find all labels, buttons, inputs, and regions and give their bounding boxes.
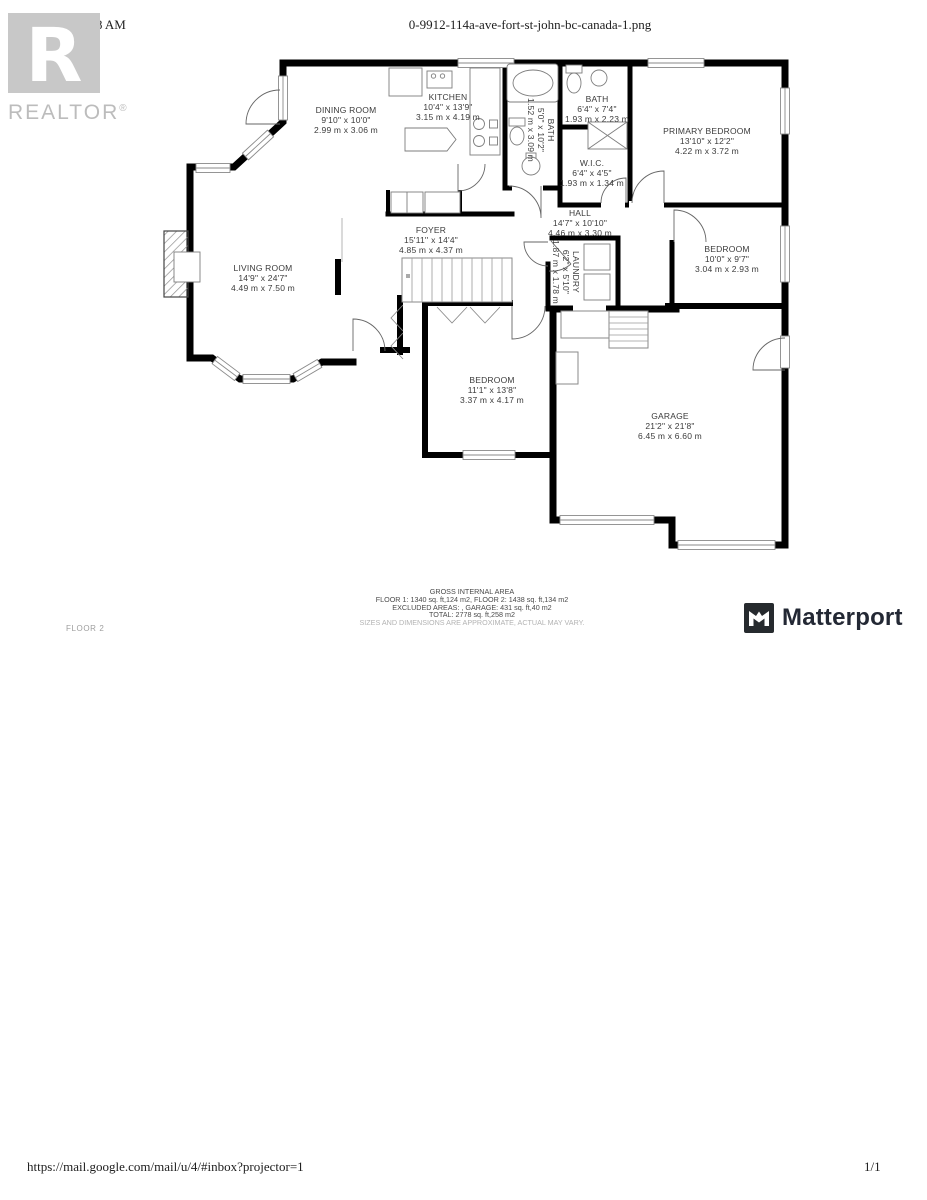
- room-label-wic: W.I.C.6'4" x 4'5"1.93 m x 1.34 m: [560, 158, 624, 188]
- washer: [584, 244, 610, 270]
- room-label-primary-bedroom: PRIMARY BEDROOM13'10" x 12'2"4.22 m x 3.…: [663, 126, 751, 156]
- matterport-logo: Matterport: [744, 603, 903, 633]
- area-summary-disclaimer: SIZES AND DIMENSIONS ARE APPROXIMATE, AC…: [360, 619, 585, 627]
- area-summary: GROSS INTERNAL AREA FLOOR 1: 1340 sq. ft…: [360, 588, 585, 627]
- matterport-wordmark: Matterport: [782, 604, 903, 632]
- bathroom-sink: [591, 70, 607, 86]
- realtor-r-icon: R: [8, 13, 100, 93]
- kitchen-island: [405, 128, 456, 151]
- floorplan-drawing: [150, 45, 800, 570]
- room-label-foyer: FOYER15'11'' x 14'4"4.85 m x 4.37 m: [399, 225, 463, 255]
- realtor-logo: R REALTOR®: [8, 13, 138, 125]
- toilet-tank: [566, 65, 582, 73]
- room-label-kitchen: KITCHEN10'4" x 13'9"3.15 m x 4.19 m: [416, 92, 480, 122]
- room-label-bath-2: BATH5'0" x 10'2"1.52 m x 3.09 m: [526, 98, 556, 162]
- room-label-dining-room: DINING ROOM9'10" x 10'0"2.99 m x 3.06 m: [314, 105, 378, 135]
- dryer: [584, 274, 610, 300]
- print-header-filename: 0-9912-114a-ave-fort-st-john-bc-canada-1…: [409, 17, 651, 33]
- print-footer-page-indicator: 1/1: [864, 1159, 881, 1175]
- floor-label: FLOOR 2: [66, 624, 104, 633]
- room-label-garage: GARAGE21'2" x 21'8"6.45 m x 6.60 m: [638, 411, 702, 441]
- realtor-wordmark: REALTOR®: [8, 101, 138, 125]
- toilet-tank: [509, 118, 525, 126]
- room-label-hall: HALL14'7" x 10'10"4.46 m x 3.30 m: [548, 208, 612, 238]
- fireplace-hearth: [174, 252, 200, 282]
- stairs: [402, 258, 648, 384]
- toilet-bowl: [510, 127, 524, 145]
- printed-page: { "page": { "header": { "date": "6/2/22,…: [0, 0, 927, 1200]
- room-label-laundry: LAUNDRY6'2" x 5'10"1.87 m x 1.78 m: [551, 240, 581, 304]
- room-label-bedroom-2: BEDROOM11'1" x 13'8"3.37 m x 4.17 m: [460, 375, 524, 405]
- kitchen-stove: [427, 71, 452, 88]
- print-footer-url: https://mail.google.com/mail/u/4/#inbox?…: [27, 1159, 304, 1175]
- room-label-bedroom: BEDROOM10'0" x 9'7"3.04 m x 2.93 m: [695, 244, 759, 274]
- svg-text:R: R: [26, 13, 83, 93]
- room-label-living-room: LIVING ROOM14'9" x 24'7"4.49 m x 7.50 m: [231, 263, 295, 293]
- kitchen-sink-bowl: [474, 136, 485, 147]
- room-label-bath: BATH6'4" x 7'4"1.93 m x 2.23 m: [565, 94, 629, 124]
- toilet-bowl: [567, 73, 581, 93]
- matterport-icon: [744, 603, 774, 633]
- foyer-closet: [425, 192, 460, 213]
